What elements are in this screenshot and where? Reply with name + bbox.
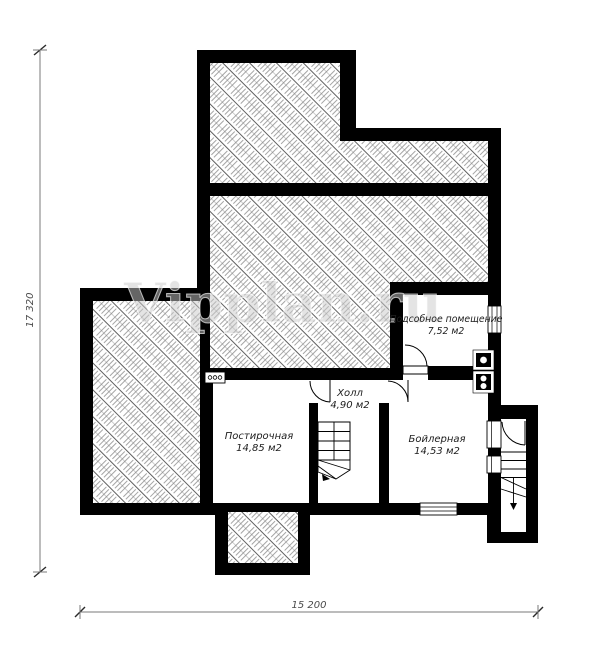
- window-boiler-bottom: [420, 503, 457, 515]
- vent-right-lower: [473, 371, 494, 393]
- room-stairwell: [501, 419, 526, 532]
- label-total-width: 15 200: [292, 600, 327, 611]
- label-laundry-name: Постирочная: [225, 431, 294, 442]
- label-laundry-area: 14,85 м2: [236, 443, 282, 454]
- window-stairwell-lower: [487, 456, 501, 473]
- door-leaf: [403, 366, 428, 374]
- vent-right-upper: [473, 350, 494, 370]
- floor-plan-drawing: Vipplan.ru: [0, 0, 600, 661]
- opening-hall-boiler: [379, 380, 389, 403]
- dimension-horizontal: 15 200: [75, 600, 543, 619]
- label-boiler-name: Бойлерная: [408, 434, 465, 445]
- watermark: Vipplan.ru: [123, 271, 442, 335]
- floor-plan-page: Vipplan.ru: [0, 0, 600, 661]
- label-utility-name: Подсобное помещение: [390, 314, 503, 325]
- window-stairwell-upper: [487, 421, 501, 448]
- label-boiler-area: 14,53 м2: [414, 446, 460, 457]
- vent-laundry-corner: [205, 372, 225, 383]
- hatch-bottom-porch: [228, 512, 298, 563]
- label-hall-name: Холл: [336, 388, 363, 399]
- label-total-height: 17 320: [25, 293, 36, 328]
- label-hall-area: 4,90 м2: [330, 400, 369, 411]
- label-utility-area: 7,52 м2: [428, 326, 465, 337]
- dimension-vertical: 17 320: [25, 45, 47, 577]
